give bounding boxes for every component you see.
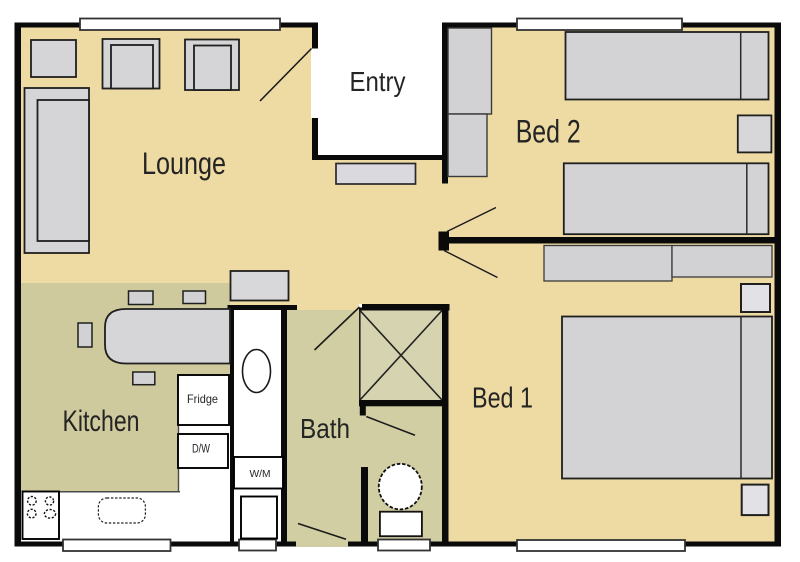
- svg-text:Bed 1: Bed 1: [472, 383, 533, 415]
- svg-text:Bed 2: Bed 2: [516, 114, 581, 150]
- svg-text:W/M: W/M: [250, 468, 271, 480]
- svg-text:Lounge: Lounge: [142, 145, 226, 181]
- svg-text:Entry: Entry: [350, 66, 406, 97]
- svg-text:Bath: Bath: [300, 413, 350, 444]
- svg-text:Fridge: Fridge: [187, 392, 218, 406]
- svg-text:Kitchen: Kitchen: [63, 405, 140, 438]
- svg-text:D/W: D/W: [192, 444, 210, 456]
